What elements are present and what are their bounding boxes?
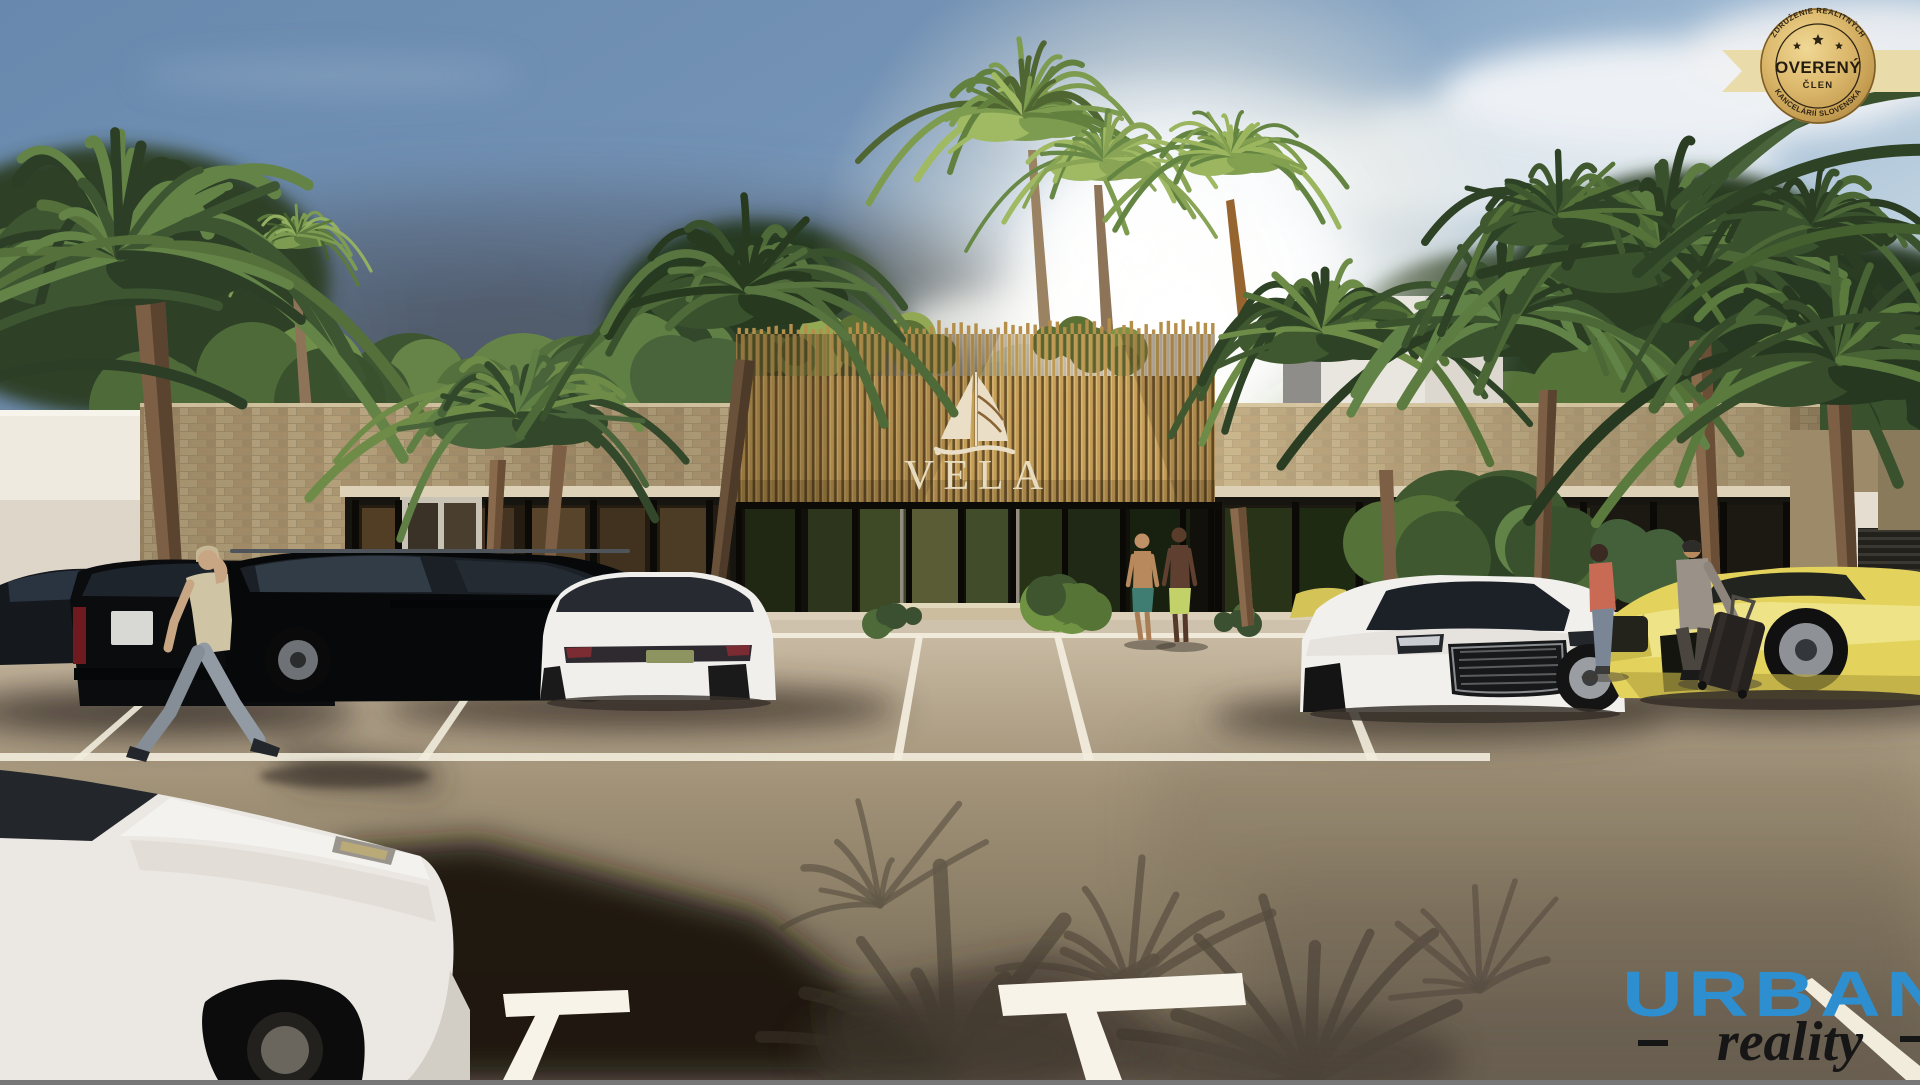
svg-text:OVERENÝ: OVERENÝ	[1775, 58, 1861, 77]
svg-text:ČLEN: ČLEN	[1803, 79, 1834, 91]
svg-text:VELA: VELA	[904, 453, 1052, 499]
svg-text:reality: reality	[1717, 1011, 1864, 1073]
